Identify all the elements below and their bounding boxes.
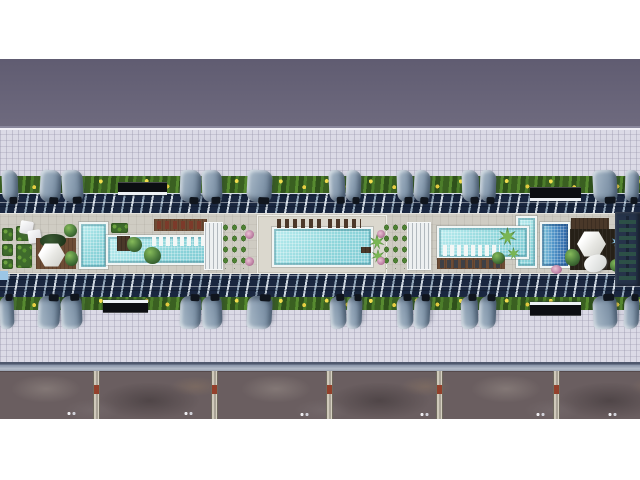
canopy-bottom-7 — [329, 296, 347, 330]
canopy-top-6 — [246, 169, 273, 202]
canopy-bottom-2 — [37, 295, 61, 329]
pool-equipment-box — [0, 271, 8, 280]
sunbeds-red-west — [157, 221, 205, 229]
canopy-bottom-4 — [179, 296, 201, 330]
pool-west-vertical — [79, 222, 108, 269]
canopy-top-3 — [61, 169, 84, 202]
pergola-center-right — [408, 223, 430, 269]
canopy-bottom-14 — [623, 296, 639, 330]
plaza-bottom — [0, 308, 640, 363]
planter-west-5 — [16, 244, 32, 268]
road-dots-6 — [607, 412, 617, 417]
flower-shrub-1 — [245, 230, 254, 239]
canopy-bottom-12 — [478, 296, 496, 330]
canopy-bottom-5 — [201, 296, 222, 330]
canopy-bottom-1 — [0, 296, 15, 329]
road-divider-4 — [436, 371, 443, 419]
shrub-east-0 — [492, 252, 505, 264]
hedge-grid-right — [382, 222, 409, 269]
shrub-west-2 — [65, 251, 78, 266]
curb-strip — [0, 362, 640, 371]
bench-center — [361, 247, 371, 253]
entry-canopy-bottom-2 — [530, 302, 581, 316]
wood-ledge-east — [571, 218, 609, 229]
glass-roof-bottom — [0, 273, 640, 299]
canopy-top-9 — [396, 170, 413, 203]
canopy-top-13 — [592, 169, 618, 202]
canopy-top-8 — [345, 170, 361, 203]
road-divider-1 — [93, 371, 100, 419]
flower-shrub-2 — [245, 257, 254, 266]
flower-shrub-3 — [377, 230, 385, 238]
canopy-top-12 — [479, 170, 496, 203]
road-divider-3 — [326, 371, 333, 419]
sunbeds-center-1 — [277, 219, 321, 228]
hedge-grid-left — [221, 222, 248, 269]
planter-west-1 — [2, 228, 13, 241]
canopy-bottom-13 — [592, 295, 618, 329]
road-dots-3 — [299, 412, 309, 417]
canopy-top-4 — [179, 170, 201, 203]
entry-canopy-top-2 — [530, 187, 581, 201]
canopy-top-10 — [413, 170, 431, 203]
shrub-mid-1 — [127, 237, 142, 252]
plaza-top — [0, 130, 640, 177]
canopy-top-14 — [624, 170, 639, 202]
planter-west-2 — [2, 244, 13, 256]
road-dots-1 — [66, 411, 76, 416]
planter-pool-west — [111, 223, 128, 233]
flower-shrub-4 — [377, 257, 385, 265]
tower-facade-east — [615, 212, 640, 286]
canopy-bottom-10 — [413, 296, 431, 330]
canopy-top-5 — [201, 170, 222, 203]
canopy-top-7 — [328, 170, 346, 203]
canopy-bottom-6 — [246, 295, 273, 329]
canopy-top-1 — [1, 170, 18, 203]
canopy-bottom-9 — [396, 296, 413, 330]
pool-center — [272, 227, 373, 267]
canopy-bottom-11 — [460, 296, 478, 330]
entry-canopy-bottom-1 — [103, 300, 148, 313]
planter-west-3 — [2, 259, 13, 269]
canopy-top-2 — [39, 169, 62, 202]
entry-canopy-top-1 — [118, 182, 167, 195]
road-dots-5 — [535, 412, 545, 417]
road-dots-4 — [419, 412, 429, 417]
canopy-bottom-8 — [346, 296, 362, 330]
inpool-loungers-west — [152, 236, 207, 246]
road-divider-5 — [553, 371, 560, 419]
canopy-top-11 — [461, 170, 479, 203]
canopy-bottom-3 — [60, 295, 83, 329]
render-canvas — [0, 0, 640, 480]
shrub-mid-2 — [144, 247, 161, 264]
upper-road-band — [0, 59, 640, 130]
road-divider-2 — [211, 371, 218, 419]
flower-shrub-5 — [551, 265, 562, 274]
pergola-center-left — [205, 223, 222, 269]
road-dots-2 — [183, 411, 193, 416]
shrub-east-1 — [565, 249, 580, 266]
shrub-west-1 — [64, 224, 77, 237]
sunbeds-center-2 — [328, 219, 361, 228]
